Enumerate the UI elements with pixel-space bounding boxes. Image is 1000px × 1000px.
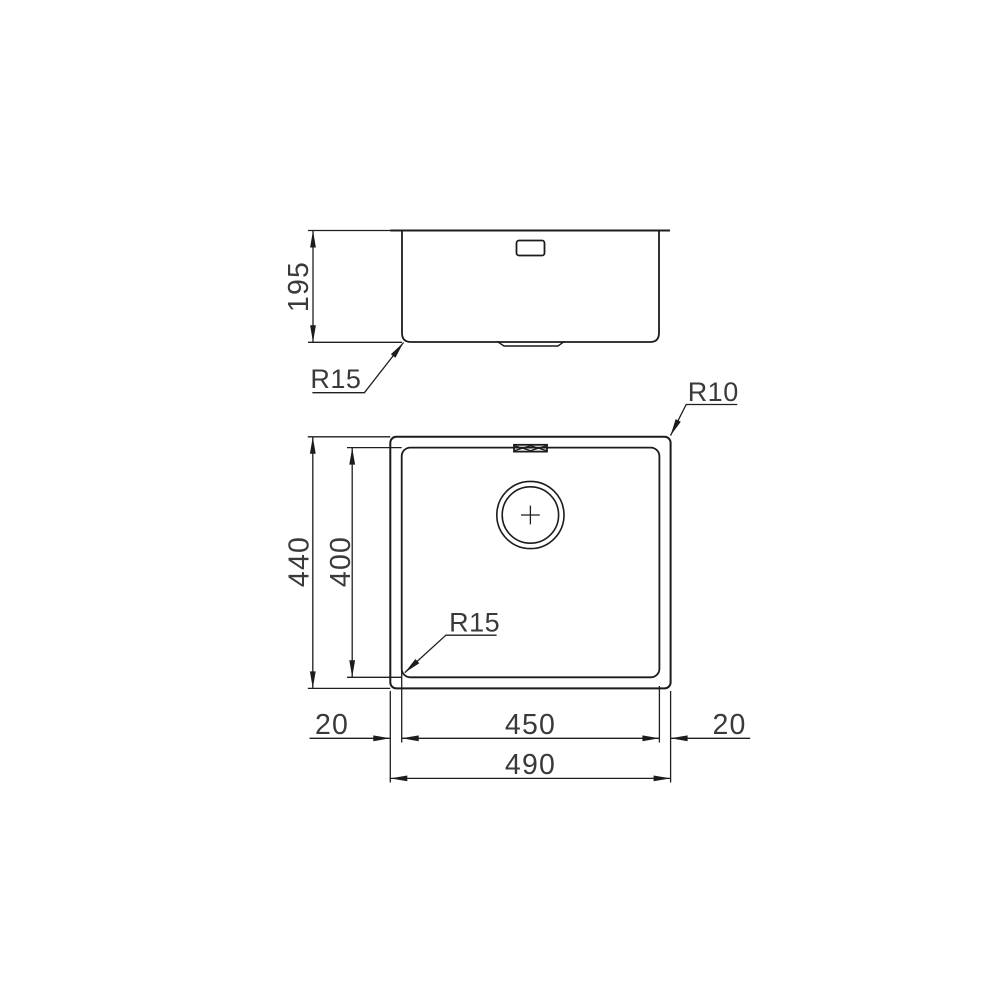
svg-text:R10: R10 [688,377,739,407]
svg-text:490: 490 [505,749,556,781]
svg-text:195: 195 [283,261,315,312]
svg-text:20: 20 [712,709,746,741]
svg-text:R15: R15 [310,364,361,394]
svg-text:R15: R15 [449,607,500,637]
svg-text:440: 440 [284,536,316,587]
svg-text:450: 450 [505,709,556,741]
svg-text:400: 400 [325,536,357,587]
svg-text:20: 20 [315,709,349,741]
